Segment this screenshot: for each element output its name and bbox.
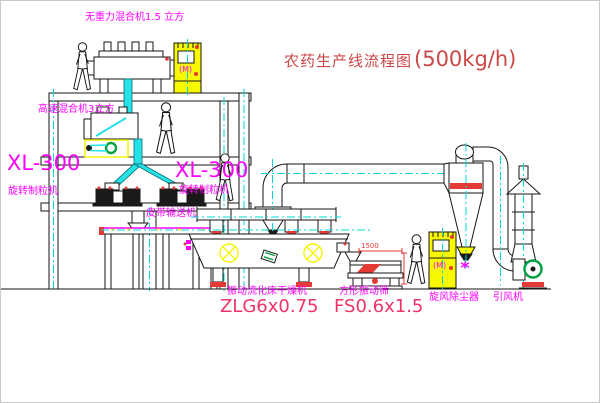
cabinet-motor-mark: (M) — [433, 262, 446, 270]
dryer-model-label: ZLG6x0.75 — [220, 298, 319, 316]
discharge-pipe — [134, 139, 142, 165]
granulator-mid-name: 旋转制粒机 — [179, 186, 229, 196]
person-figure — [407, 235, 424, 284]
floor2-mixer-label: 高速混合机3立方 — [38, 105, 114, 115]
status-dot — [165, 57, 169, 61]
granulator-left-model: XL-300 — [7, 153, 80, 174]
asterisk-mark — [461, 262, 469, 269]
dimension-label-1500: 1500 — [361, 243, 379, 250]
granulator-left — [93, 183, 142, 206]
cad-flow-diagram: 农药生产线流程图 (500kg/h) 无重力混合机1.5 立方 高速混合机3立方… — [0, 0, 600, 403]
fan-name-label: 引风机 — [493, 293, 523, 303]
control-cabinet — [429, 228, 456, 289]
induced-draft-fan — [513, 259, 547, 288]
motor-dot — [372, 278, 378, 284]
granulator-left-name: 旋转制粒机 — [8, 187, 58, 197]
cyclone-name-label: 旋风除尘器 — [429, 293, 479, 303]
belt-conveyor-label: 皮带输送机 — [146, 209, 196, 219]
roof-mixer — [86, 42, 179, 93]
sieve-model-label: FS0.6x1.5 — [334, 298, 423, 316]
pulley-icon — [106, 143, 116, 153]
title-capacity: (500kg/h) — [414, 47, 516, 71]
title-text: 农药生产线流程图 — [284, 50, 412, 71]
floor2-mixer — [84, 79, 142, 165]
person-figure — [157, 103, 175, 154]
elevator-motor-mark: (M) — [179, 66, 192, 74]
roof-mixer-label: 无重力混合机1.5 立方 — [85, 13, 184, 23]
diagram-title: 农药生产线流程图 (500kg/h) — [284, 47, 516, 71]
granulator-mid-model: XL-300 — [175, 160, 248, 181]
